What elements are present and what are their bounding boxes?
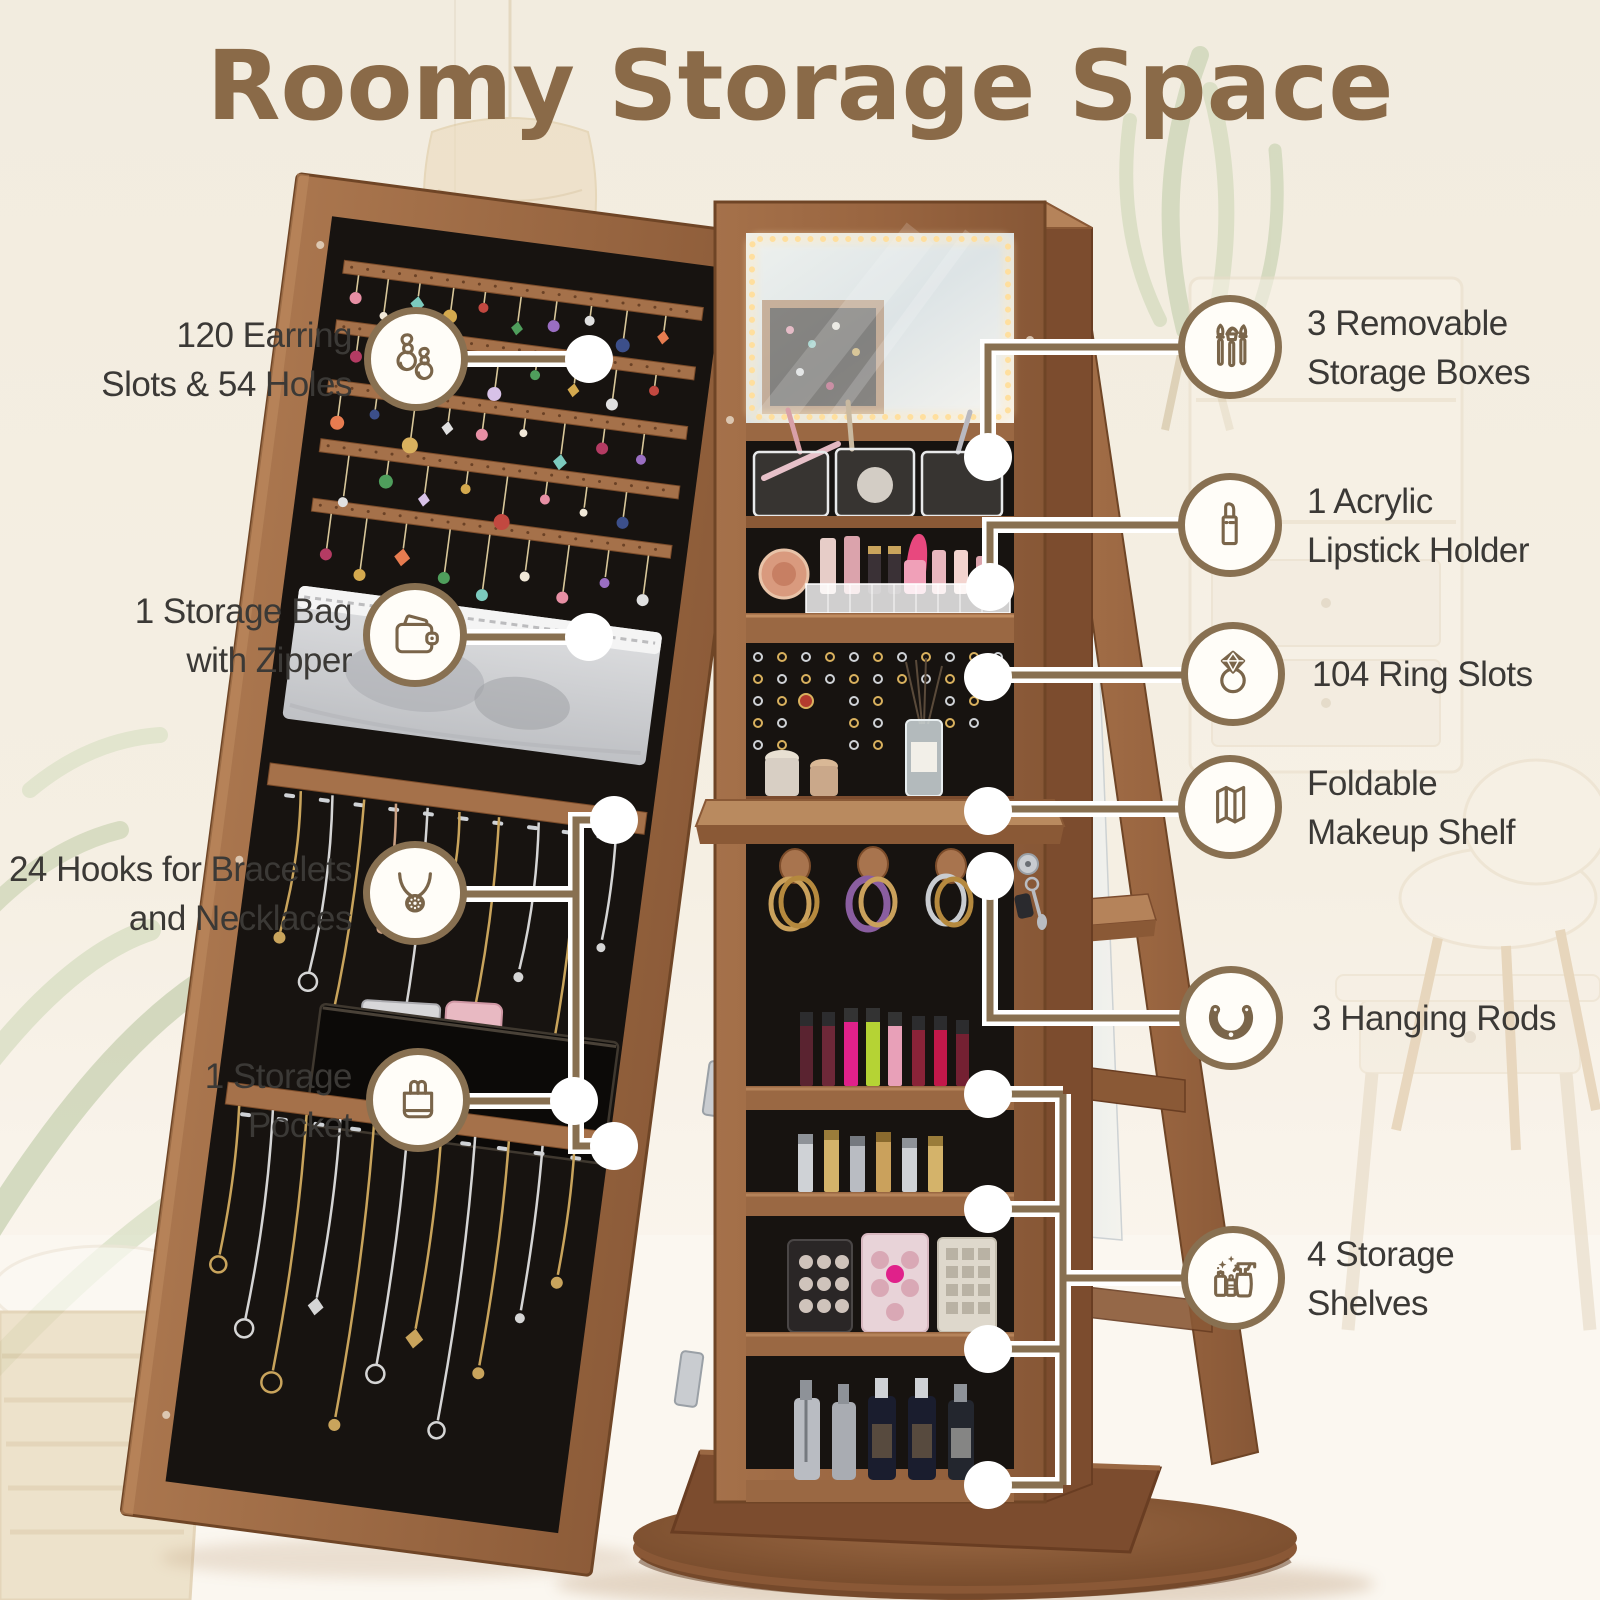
label-line: Lipstick Holder — [1307, 526, 1529, 575]
earrings-icon — [385, 328, 447, 390]
storage-pocket-label: 1 Storage Pocket — [205, 1052, 352, 1150]
label-line: with Zipper — [135, 636, 352, 685]
makeup-shelf-badge — [1178, 755, 1282, 859]
label-line: 24 Hooks for Bracelets — [9, 845, 352, 894]
label-line: 1 Storage Bag — [135, 587, 352, 636]
diamond-ring-icon — [1201, 642, 1265, 706]
makeup-brushes-icon — [1199, 316, 1261, 378]
storage-boxes-label: 3 Removable Storage Boxes — [1307, 299, 1530, 397]
label-line: 120 Earring — [101, 311, 352, 360]
ring-slots-badge — [1181, 622, 1285, 726]
makeup-shelf-label: Foldable Makeup Shelf — [1307, 759, 1515, 857]
lipstick-holder-label: 1 Acrylic Lipstick Holder — [1307, 477, 1529, 575]
label-line: Pocket — [205, 1101, 352, 1150]
lipstick-holder-badge — [1178, 473, 1282, 577]
connector-casings — [415, 347, 1233, 1485]
bracelet-icon — [1199, 986, 1263, 1050]
hooks-label: 24 Hooks for Bracelets and Necklaces — [9, 845, 352, 943]
label-line: Shelves — [1307, 1279, 1454, 1328]
necklace-icon — [383, 861, 447, 925]
label-line: 1 Storage — [205, 1052, 352, 1101]
storage-pocket-badge — [366, 1048, 470, 1152]
hooks-badge — [363, 841, 467, 945]
label-line: Makeup Shelf — [1307, 808, 1515, 857]
shopping-bag-icon — [387, 1069, 449, 1131]
infographic-canvas: Roomy Storage Space — [0, 0, 1600, 1600]
label-line: Slots & 54 Holes — [101, 360, 352, 409]
lipstick-icon — [1199, 494, 1261, 556]
hanging-rods-badge — [1179, 966, 1283, 1070]
label-line: and Necklaces — [9, 894, 352, 943]
label-line: 104 Ring Slots — [1312, 650, 1533, 699]
earring-slots-badge — [364, 307, 468, 411]
storage-shelves-label: 4 Storage Shelves — [1307, 1230, 1454, 1328]
storage-shelves-badge — [1181, 1226, 1285, 1330]
storage-bag-label: 1 Storage Bag with Zipper — [135, 587, 352, 685]
earring-slots-label: 120 Earring Slots & 54 Holes — [101, 311, 352, 409]
ring-slots-label: 104 Ring Slots — [1312, 650, 1533, 699]
label-line: Storage Boxes — [1307, 348, 1530, 397]
wallet-icon — [384, 604, 446, 666]
label-line: 1 Acrylic — [1307, 477, 1529, 526]
hanging-rods-label: 3 Hanging Rods — [1312, 994, 1556, 1043]
cleaning-bottles-icon — [1202, 1247, 1264, 1309]
label-line: 3 Removable — [1307, 299, 1530, 348]
storage-boxes-badge — [1178, 295, 1282, 399]
label-line: Foldable — [1307, 759, 1515, 808]
label-line: 4 Storage — [1307, 1230, 1454, 1279]
foldable-shelf-icon — [1199, 776, 1261, 838]
connector-endpoint-dots — [550, 335, 1014, 1509]
label-line: 3 Hanging Rods — [1312, 994, 1556, 1043]
storage-bag-badge — [363, 583, 467, 687]
